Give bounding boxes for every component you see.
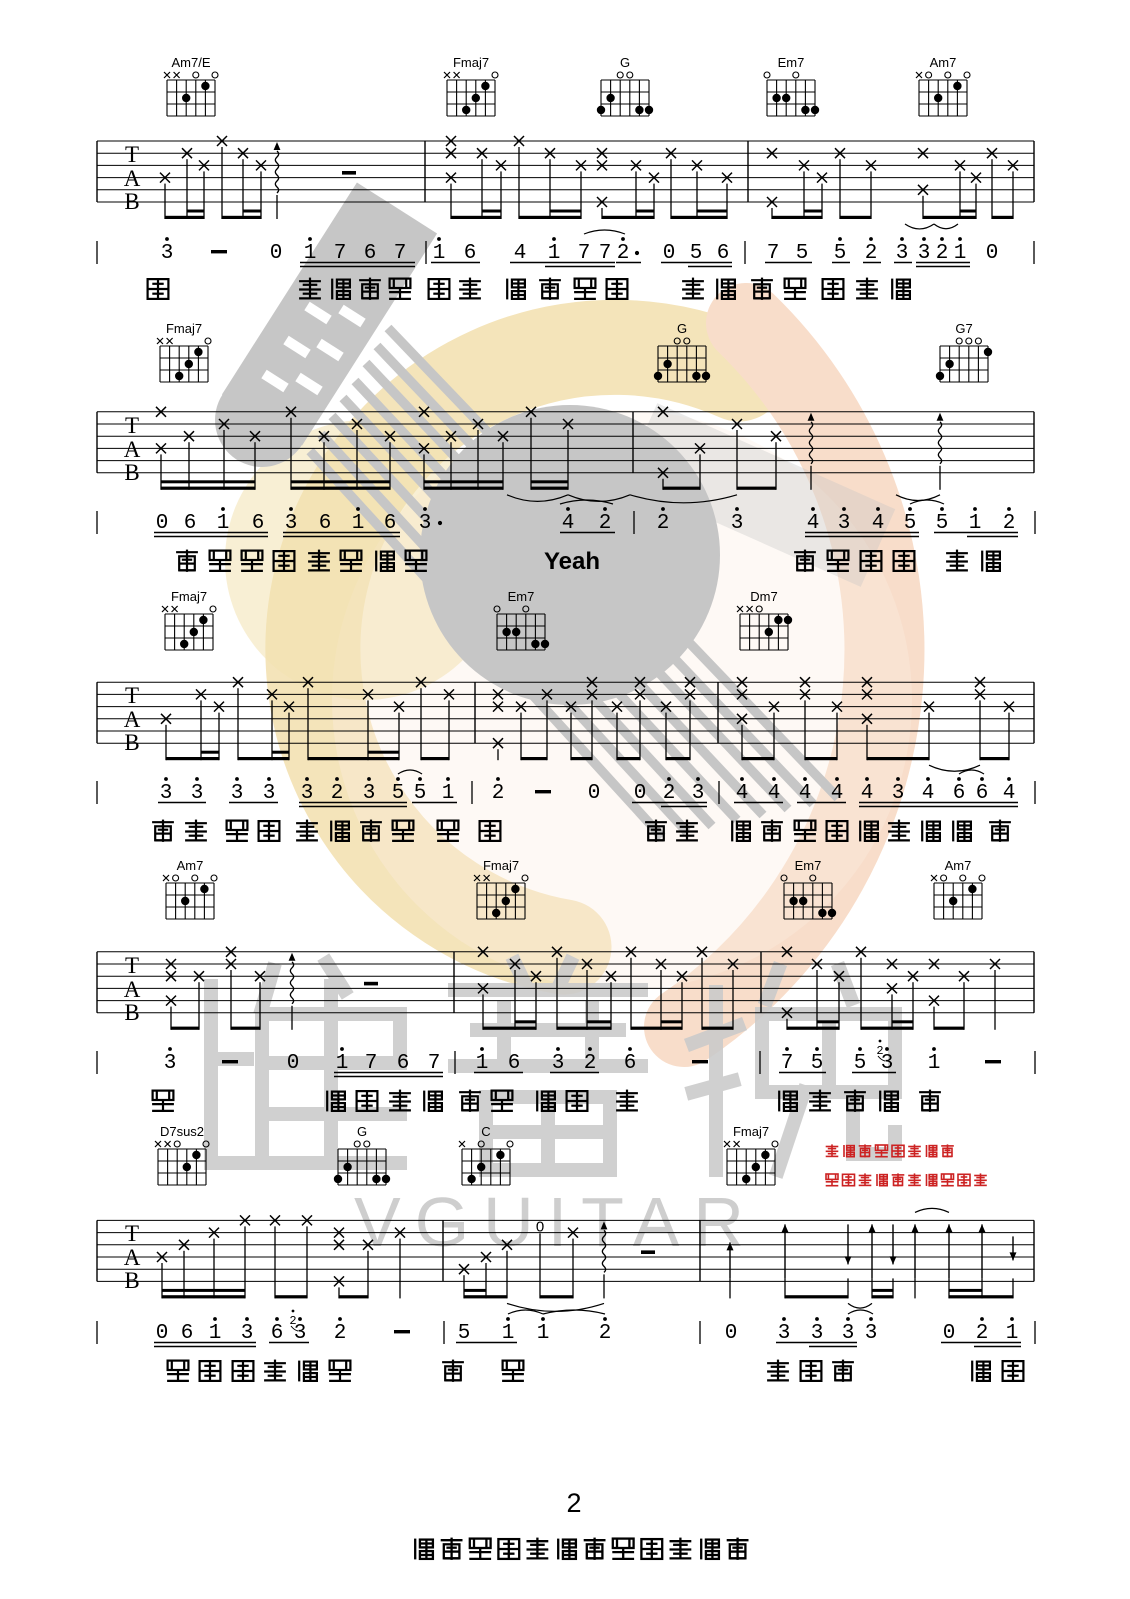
svg-text:7: 7 <box>428 1052 441 1075</box>
svg-text:4: 4 <box>799 782 812 805</box>
svg-text:A: A <box>124 1245 141 1270</box>
svg-text:VGUITAR: VGUITAR <box>354 1183 758 1261</box>
svg-text:4: 4 <box>768 782 781 805</box>
svg-text:6: 6 <box>252 512 265 535</box>
svg-text:2: 2 <box>865 242 878 265</box>
svg-text:4: 4 <box>736 782 749 805</box>
svg-text:Fmaj7: Fmaj7 <box>453 55 489 70</box>
svg-text:7: 7 <box>781 1052 794 1075</box>
svg-text:6: 6 <box>464 242 477 265</box>
svg-text:Am7: Am7 <box>930 55 957 70</box>
svg-text:3: 3 <box>838 512 851 535</box>
svg-text:C: C <box>481 1124 490 1139</box>
svg-text:0: 0 <box>287 1052 300 1075</box>
svg-text:5: 5 <box>904 512 917 535</box>
svg-text:5: 5 <box>414 782 427 805</box>
svg-text:3: 3 <box>363 782 376 805</box>
svg-text:4: 4 <box>562 512 575 535</box>
svg-text:6: 6 <box>181 1322 194 1345</box>
svg-text:1: 1 <box>954 242 967 265</box>
svg-text:6: 6 <box>976 782 989 805</box>
svg-text:6: 6 <box>953 782 966 805</box>
svg-text:0: 0 <box>663 242 676 265</box>
svg-text:3: 3 <box>231 782 244 805</box>
svg-text:Yeah: Yeah <box>544 548 600 575</box>
svg-text:T: T <box>125 683 139 708</box>
svg-text:5: 5 <box>811 1052 824 1075</box>
svg-text:3: 3 <box>241 1322 254 1345</box>
svg-text:3: 3 <box>842 1322 855 1345</box>
svg-text:4: 4 <box>831 782 844 805</box>
svg-text:6: 6 <box>384 512 397 535</box>
svg-text:6: 6 <box>184 512 197 535</box>
svg-text:0: 0 <box>725 1322 738 1345</box>
svg-text:5: 5 <box>936 512 949 535</box>
svg-text:6: 6 <box>271 1322 284 1345</box>
svg-text:Em7: Em7 <box>778 55 805 70</box>
svg-text:4: 4 <box>861 782 874 805</box>
svg-text:3: 3 <box>731 512 744 535</box>
svg-text:4: 4 <box>1003 782 1016 805</box>
svg-text:3: 3 <box>692 782 705 805</box>
svg-text:6: 6 <box>364 242 377 265</box>
svg-text:Am7: Am7 <box>945 858 972 873</box>
svg-text:0: 0 <box>270 242 283 265</box>
svg-text:6: 6 <box>319 512 332 535</box>
svg-text:1: 1 <box>548 242 561 265</box>
svg-text:Fmaj7: Fmaj7 <box>733 1124 769 1139</box>
svg-text:2: 2 <box>936 242 949 265</box>
svg-text:Am7/E: Am7/E <box>171 55 210 70</box>
svg-text:3: 3 <box>881 1052 894 1075</box>
svg-text:Dm7: Dm7 <box>750 589 777 604</box>
svg-text:0: 0 <box>588 782 601 805</box>
svg-text:0: 0 <box>156 512 169 535</box>
svg-text:B: B <box>124 1268 139 1293</box>
svg-text:3: 3 <box>191 782 204 805</box>
svg-text:7: 7 <box>767 242 780 265</box>
svg-text:3: 3 <box>263 782 276 805</box>
svg-text:Em7: Em7 <box>508 589 535 604</box>
svg-text:7: 7 <box>394 242 407 265</box>
svg-text:G: G <box>357 1124 367 1139</box>
svg-text:1: 1 <box>1006 1322 1019 1345</box>
svg-text:2: 2 <box>657 512 670 535</box>
svg-text:7: 7 <box>334 242 347 265</box>
svg-text:2: 2 <box>976 1322 989 1345</box>
svg-text:B: B <box>124 730 139 755</box>
svg-text:1: 1 <box>352 512 365 535</box>
svg-text:0: 0 <box>536 1218 544 1235</box>
svg-text:3: 3 <box>164 1052 177 1075</box>
svg-text:3: 3 <box>811 1322 824 1345</box>
svg-text:7: 7 <box>578 242 591 265</box>
svg-text:7: 7 <box>599 242 612 265</box>
svg-text:Fmaj7: Fmaj7 <box>166 321 202 336</box>
svg-text:A: A <box>124 166 141 191</box>
svg-text:B: B <box>124 189 139 214</box>
svg-text:1: 1 <box>928 1052 941 1075</box>
svg-text:6: 6 <box>397 1052 410 1075</box>
svg-text:6: 6 <box>624 1052 637 1075</box>
svg-text:3: 3 <box>419 512 432 535</box>
svg-text:3: 3 <box>161 242 174 265</box>
svg-text:1: 1 <box>209 1322 222 1345</box>
svg-text:3: 3 <box>552 1052 565 1075</box>
svg-text:5: 5 <box>796 242 809 265</box>
svg-text:G: G <box>620 55 630 70</box>
svg-text:4: 4 <box>807 512 820 535</box>
svg-text:0: 0 <box>634 782 647 805</box>
svg-text:0: 0 <box>943 1322 956 1345</box>
svg-text:D7sus2: D7sus2 <box>160 1124 204 1139</box>
svg-text:5: 5 <box>690 242 703 265</box>
svg-text:0: 0 <box>156 1322 169 1345</box>
svg-text:7: 7 <box>365 1052 378 1075</box>
svg-text:G: G <box>677 321 687 336</box>
svg-text:3: 3 <box>301 782 314 805</box>
svg-text:B: B <box>124 460 139 485</box>
svg-text:Em7: Em7 <box>795 858 822 873</box>
svg-text:5: 5 <box>854 1052 867 1075</box>
svg-text:T: T <box>125 413 139 438</box>
svg-text:A: A <box>124 437 141 462</box>
svg-text:4: 4 <box>514 242 527 265</box>
svg-text:Fmaj7: Fmaj7 <box>483 858 519 873</box>
svg-text:Fmaj7: Fmaj7 <box>171 589 207 604</box>
svg-text:1: 1 <box>433 242 446 265</box>
svg-text:A: A <box>124 977 141 1002</box>
svg-text:1: 1 <box>476 1052 489 1075</box>
svg-text:Am7: Am7 <box>177 858 204 873</box>
svg-text:1: 1 <box>502 1322 515 1345</box>
svg-text:3: 3 <box>918 242 931 265</box>
svg-text:2: 2 <box>584 1052 597 1075</box>
svg-text:2: 2 <box>617 242 630 265</box>
svg-text:2: 2 <box>663 782 676 805</box>
svg-text:A: A <box>124 707 141 732</box>
svg-text:5: 5 <box>392 782 405 805</box>
svg-text:5: 5 <box>458 1322 471 1345</box>
svg-text:3: 3 <box>865 1322 878 1345</box>
svg-text:3: 3 <box>294 1322 307 1345</box>
svg-text:1: 1 <box>537 1322 550 1345</box>
svg-text:3: 3 <box>778 1322 791 1345</box>
svg-text:B: B <box>124 1000 139 1025</box>
svg-text:2: 2 <box>566 1488 581 1518</box>
svg-text:2: 2 <box>599 1322 612 1345</box>
svg-text:G7: G7 <box>955 321 972 336</box>
svg-text:3: 3 <box>160 782 173 805</box>
svg-text:T: T <box>125 1221 139 1246</box>
svg-text:2: 2 <box>492 782 505 805</box>
svg-text:1: 1 <box>217 512 230 535</box>
svg-text:3: 3 <box>896 242 909 265</box>
svg-text:6: 6 <box>717 242 730 265</box>
svg-text:2: 2 <box>334 1322 347 1345</box>
svg-text:4: 4 <box>922 782 935 805</box>
svg-text:6: 6 <box>508 1052 521 1075</box>
svg-text:2: 2 <box>331 782 344 805</box>
svg-text:1: 1 <box>336 1052 349 1075</box>
svg-text:2: 2 <box>1003 512 1016 535</box>
svg-text:3: 3 <box>892 782 905 805</box>
svg-text:0: 0 <box>986 242 999 265</box>
svg-text:1: 1 <box>304 242 317 265</box>
svg-text:3: 3 <box>285 512 298 535</box>
svg-text:1: 1 <box>969 512 982 535</box>
svg-text:T: T <box>125 142 139 167</box>
svg-text:1: 1 <box>442 782 455 805</box>
svg-text:T: T <box>125 953 139 978</box>
svg-text:4: 4 <box>872 512 885 535</box>
svg-text:2: 2 <box>599 512 612 535</box>
svg-text:5: 5 <box>834 242 847 265</box>
